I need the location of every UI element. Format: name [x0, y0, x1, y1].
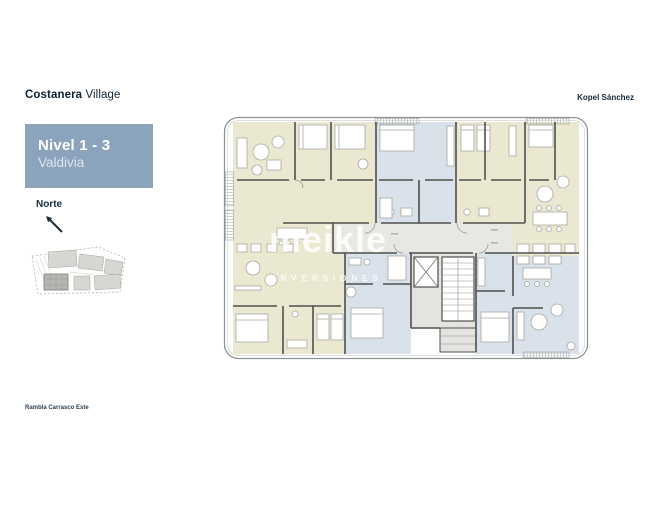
street-label: Rambla Carrasco Este [25, 405, 89, 411]
site-key-map [28, 244, 128, 296]
site-building-5 [74, 276, 90, 290]
site-building-1 [48, 250, 77, 268]
level-title: Nivel 1 - 3 [38, 137, 153, 154]
north-arrow-icon [42, 214, 68, 236]
building-name: Valdivia [38, 155, 153, 170]
brand-logo: Costanera Village [25, 89, 120, 101]
site-building-2 [78, 254, 104, 271]
site-building-highlighted [44, 274, 68, 290]
site-building-6 [94, 274, 121, 290]
elevator-core [414, 257, 438, 287]
north-label: Norte [36, 199, 62, 210]
site-building-3 [104, 259, 123, 276]
architect-firm-name: Kopel Sánchez [577, 93, 634, 102]
floor-plan: meikle INVERSIONES [223, 116, 589, 360]
brand-bold: Costanera [25, 89, 82, 101]
level-info-box: Nivel 1 - 3 Valdivia [25, 124, 153, 188]
brand-light: Village [82, 89, 120, 101]
plan-sheet-page: Costanera Village Kopel Sánchez Nivel 1 … [0, 0, 660, 510]
floor-plan-drawing [223, 116, 589, 360]
